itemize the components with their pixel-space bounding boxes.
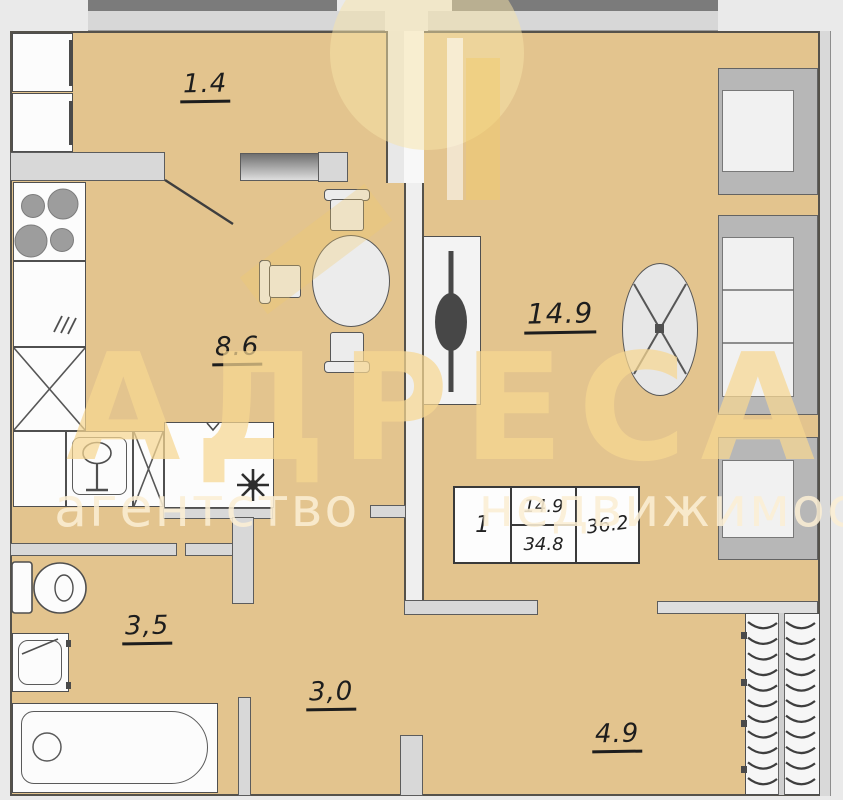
kitchen-unit-x (133, 431, 164, 507)
stamp-total-area: 34.8 (512, 526, 575, 562)
wall-balcony-bottom (10, 152, 165, 181)
stamp-overall-area: 36.2 (573, 485, 643, 566)
room-label-balcony: 1.4 (180, 70, 231, 103)
sliding-wardrobe (423, 236, 481, 405)
room-label-bathroom: 3,5 (122, 612, 173, 645)
sink-basin-outline (72, 437, 127, 495)
kitchen-cabinet (13, 431, 66, 507)
wall-outer-right (820, 31, 831, 796)
closet-divider (778, 613, 785, 795)
bathtub-inner (21, 711, 208, 784)
watermark-logo-bar2 (466, 58, 500, 200)
wall-bathroom-right-upper (232, 517, 254, 604)
room-label-kitchen: 8.6 (212, 333, 263, 366)
wall-bathroom-right-lower (238, 697, 251, 796)
living-round-table (622, 263, 698, 396)
watermark-logo-bar (447, 38, 463, 200)
washing-machine-drum (18, 640, 62, 685)
wall-central-vertical (404, 183, 424, 615)
wall-under-starbox (163, 508, 273, 519)
wall-bathroom-top-left (10, 543, 177, 556)
room-label-hallway: 3,0 (306, 678, 357, 711)
floor-plan: 1 14.9 34.8 36.2 (0, 0, 843, 800)
wall-stub-hall (370, 505, 406, 518)
wall-hall-lower (400, 735, 423, 796)
room-label-wardrobe: 4.9 (592, 720, 643, 753)
right-unit-3-window (722, 460, 794, 538)
stamp-rooms-count: 1 (455, 488, 512, 562)
wall-balcony-corner (318, 152, 348, 182)
kitchen-counter (13, 261, 86, 347)
stamp-areas: 14.9 34.8 (512, 488, 577, 562)
balcony-cabinet-2 (12, 93, 73, 152)
area-stamp-table: 1 14.9 34.8 36.2 (453, 486, 640, 564)
stove (13, 182, 86, 261)
right-unit-1-window (722, 90, 794, 172)
wall-bathroom-top-right (185, 543, 233, 556)
fridge-unit (13, 347, 86, 431)
room-label-living: 14.9 (524, 298, 597, 334)
balcony-cabinet-1 (12, 33, 73, 92)
stamp-living-area: 14.9 (512, 488, 575, 526)
chair-bottom-back (324, 361, 370, 373)
right-unit-2-window (722, 237, 794, 397)
wall-hall-top (404, 600, 538, 615)
vent-box (164, 422, 274, 508)
facade-bar-left (88, 0, 337, 11)
window-balcony (240, 153, 320, 181)
chair-bottom-seat (330, 332, 364, 363)
